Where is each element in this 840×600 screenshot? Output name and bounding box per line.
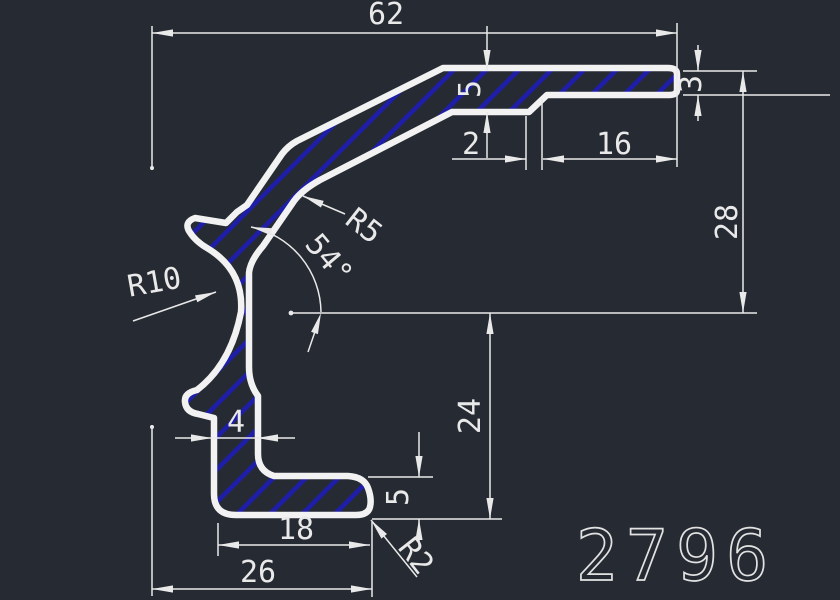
- dim-label-overall-width: 62: [368, 0, 404, 32]
- dim-label-flange-inner-length: 18: [278, 512, 314, 547]
- cad-viewport: 62 5 2 16 3 28 24: [0, 0, 840, 600]
- dim-label-right-height: 28: [710, 204, 745, 240]
- dim-label-flange-thickness: 5: [381, 488, 416, 506]
- dim-label-leg-thickness: 4: [227, 405, 245, 440]
- dim-label-mid-height: 24: [453, 398, 488, 434]
- part-number: 2796: [576, 515, 777, 597]
- cad-drawing: 62 5 2 16 3 28 24: [0, 0, 840, 600]
- dim-label-top-right-length: 16: [596, 127, 632, 162]
- angle-vertex-dot: [289, 311, 294, 316]
- dim-label-top-thickness: 5: [453, 80, 488, 98]
- dim-label-flange-overall-length: 26: [240, 555, 276, 590]
- dim-label-step-width: 2: [462, 127, 480, 162]
- dim-label-end-thickness: 3: [674, 75, 709, 93]
